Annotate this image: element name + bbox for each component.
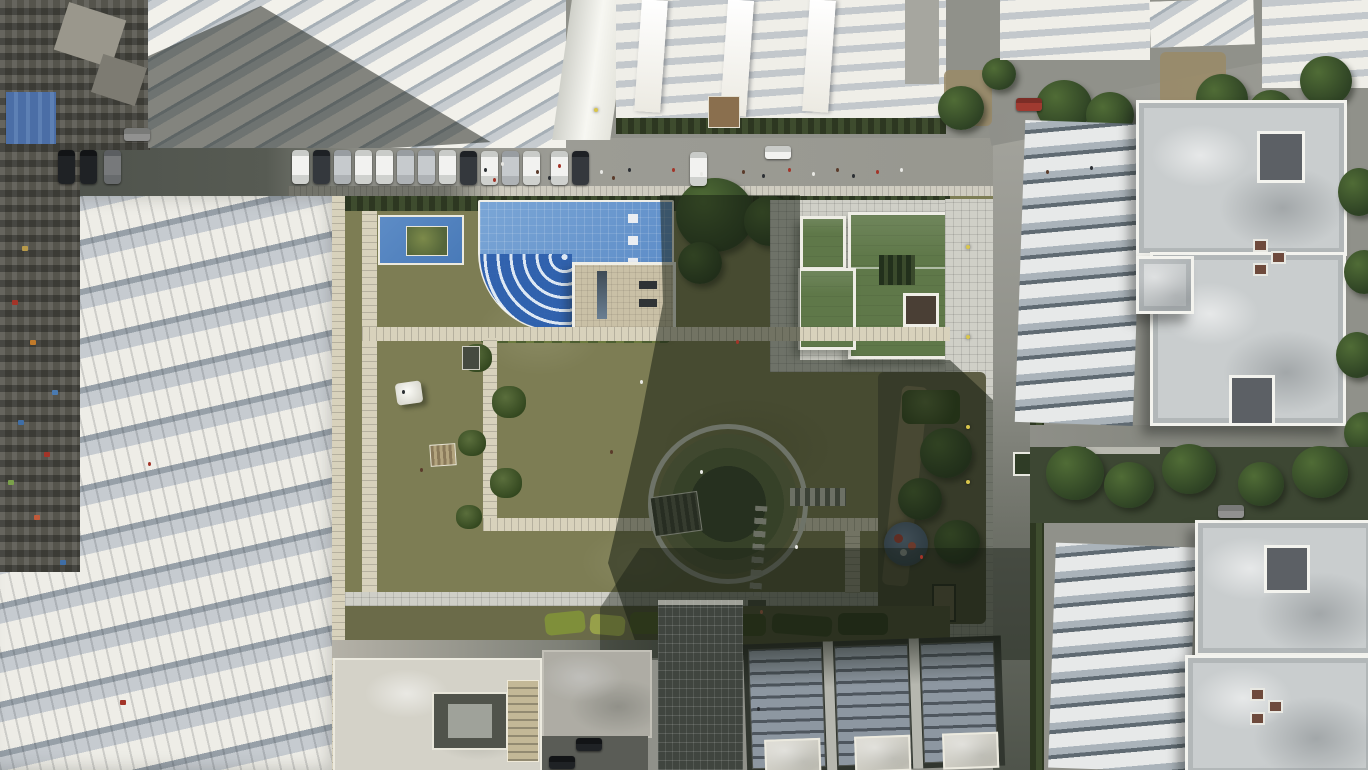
roof-vent: [639, 281, 657, 289]
roof-vent: [639, 299, 657, 307]
pool-lane-marker: [628, 214, 638, 223]
north-road-spur: [905, 0, 939, 84]
tree: [938, 86, 984, 130]
white-tent: [395, 380, 424, 405]
tree: [1292, 446, 1348, 498]
gap-footpath: [1086, 447, 1160, 454]
parapet-highlight: [658, 600, 743, 605]
solar-roof-complex: [743, 636, 1005, 770]
south-parking: [542, 736, 648, 770]
east-road-hedge-south: [1030, 523, 1044, 770]
roof-vent-red: [1271, 251, 1286, 264]
roof-vent-red: [1253, 239, 1268, 252]
building-shadow-northwest: [148, 0, 566, 148]
roof-opening: [432, 692, 508, 750]
roof-notch: [1257, 131, 1305, 183]
east-tower-south-roof-lower: [1185, 655, 1368, 770]
tree: [1046, 446, 1104, 500]
stair-tower: [764, 738, 821, 770]
skylight-strip: [597, 271, 607, 319]
roof-courtyard-cut: [903, 293, 939, 327]
tower-core-roof: [634, 0, 668, 113]
pool-lane-marker: [628, 236, 638, 245]
roof-vent-red: [1253, 263, 1268, 276]
roof-plant-units: [879, 255, 915, 285]
roof-vent-red: [1250, 712, 1265, 725]
roof-vent-red: [1268, 700, 1283, 713]
inner-court: [448, 704, 492, 738]
stair-structure: [507, 680, 539, 762]
hedge-strip: [616, 118, 946, 134]
apartment-roof-top-right: [1149, 0, 1255, 48]
south-roof-west: [333, 658, 542, 770]
lawn-path-north: [362, 327, 950, 341]
blue-tarp-roof: [6, 92, 56, 144]
tower-core-roof: [802, 0, 836, 113]
shrub: [490, 468, 522, 498]
east-tower-south-balconies: [1048, 543, 1196, 770]
south-building-shaded: [658, 600, 743, 770]
tree: [1162, 444, 1216, 494]
tree: [1238, 462, 1284, 506]
kids-pool: [378, 215, 464, 265]
roof-notch: [1264, 545, 1310, 593]
apartment-slab-north-center: [616, 0, 946, 134]
clubhouse-roof-small: [800, 216, 846, 270]
tree: [1344, 250, 1368, 294]
east-tower-north-balconies: [1015, 120, 1143, 426]
roof-vent-red: [1250, 688, 1265, 701]
apartment-slab-northeast: [1000, 0, 1150, 60]
shrub: [458, 430, 486, 456]
lawn-path-west: [362, 211, 377, 649]
shrub: [456, 505, 482, 529]
tree: [1300, 56, 1352, 106]
aerial-photo-stage: [0, 0, 1368, 770]
east-tower-wing-roof: [1136, 256, 1194, 314]
old-town-block-northwest: [0, 0, 150, 150]
tree: [1104, 462, 1154, 508]
east-branch-road: [1030, 425, 1368, 447]
apartment-slab-north-west: [148, 0, 566, 148]
garden-pergola: [429, 443, 456, 467]
pool-planter-island: [406, 226, 448, 256]
flower-bed: [544, 610, 586, 636]
shadow-on-solar: [743, 636, 1002, 691]
east-tower-south-roof: [1195, 520, 1368, 656]
south-roof-center: [542, 650, 652, 738]
tree: [982, 58, 1016, 90]
stair-tower: [942, 732, 999, 770]
old-town-strip-west: [0, 148, 80, 572]
gazebo-roof: [462, 346, 480, 370]
east-tower-north-roof: [1136, 100, 1347, 256]
shrub: [492, 386, 526, 418]
entrance-canopy: [708, 96, 740, 128]
roof-notch: [1229, 375, 1275, 426]
stair-tower: [854, 735, 911, 770]
